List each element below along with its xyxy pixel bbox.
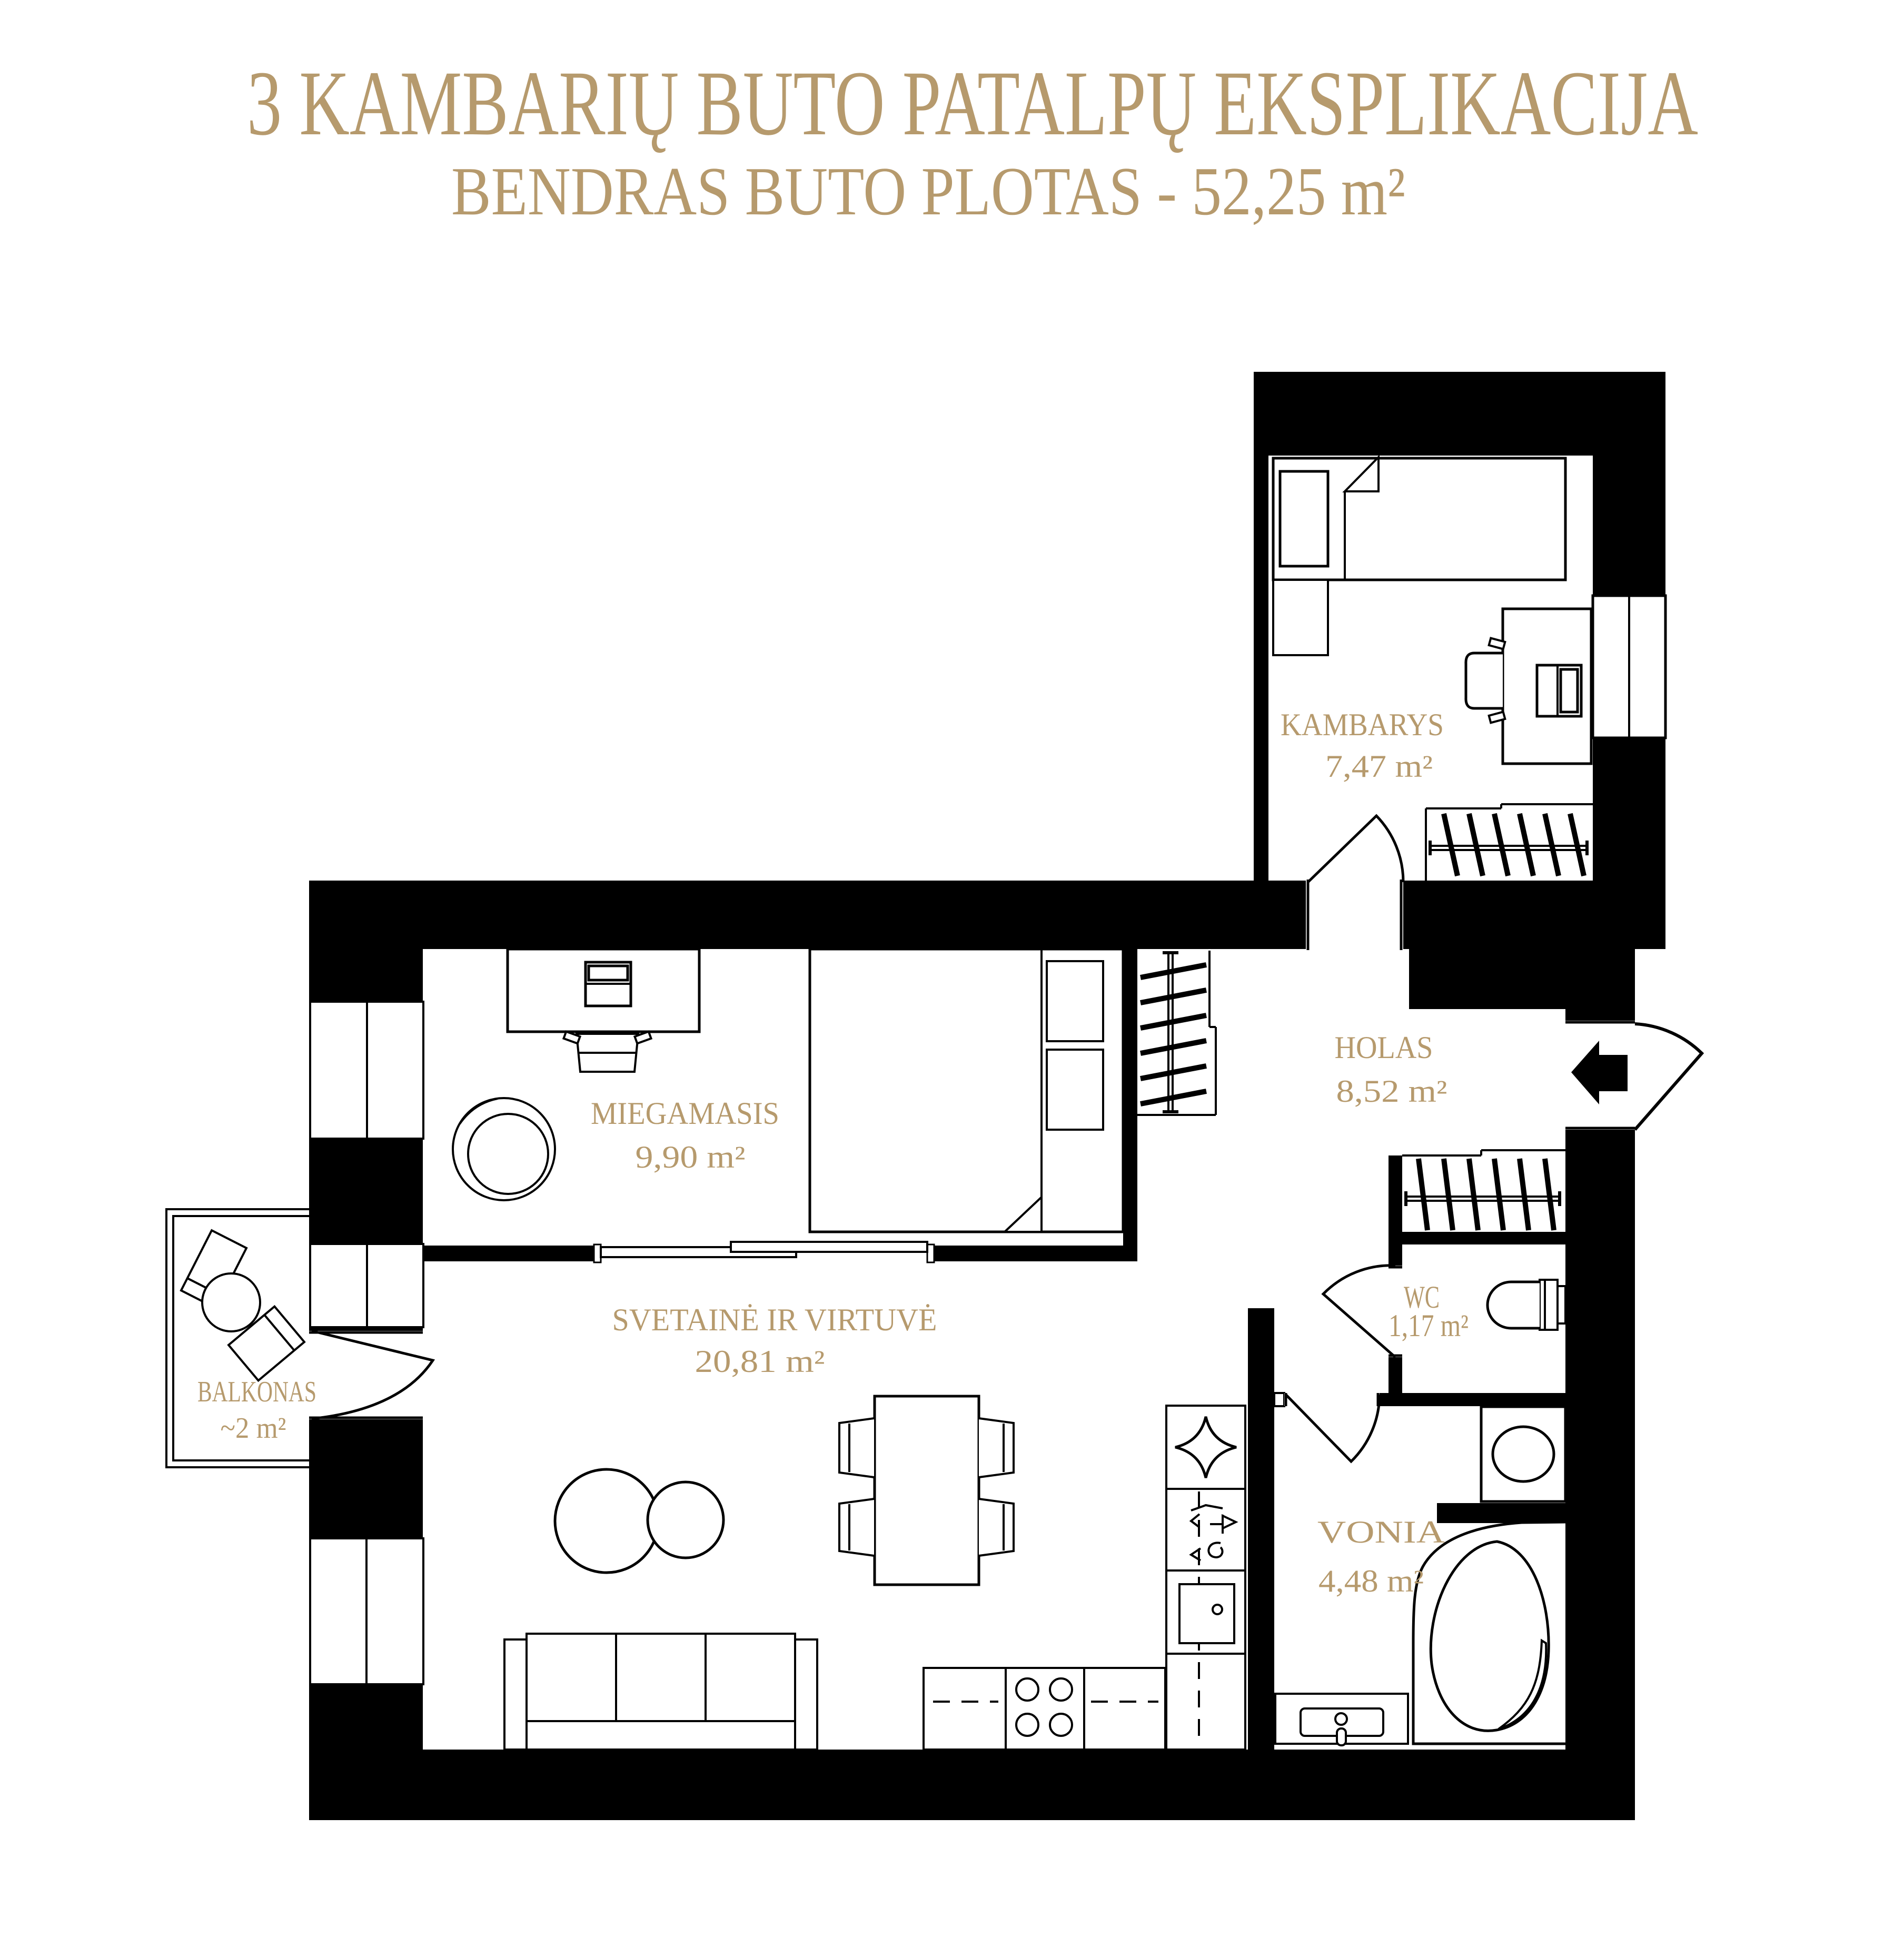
svg-text:9,90 m²: 9,90 m² bbox=[636, 1140, 746, 1174]
svg-text:VONIA: VONIA bbox=[1317, 1515, 1445, 1549]
svg-text:~2 m²: ~2 m² bbox=[221, 1412, 286, 1445]
svg-text:4,48 m²: 4,48 m² bbox=[1318, 1564, 1424, 1598]
svg-text:MIEGAMASIS: MIEGAMASIS bbox=[591, 1096, 779, 1131]
svg-text:3 KAMBARIŲ BUTO PATALPŲ EKSPLI: 3 KAMBARIŲ BUTO PATALPŲ EKSPLIKACIJA bbox=[247, 52, 1698, 155]
svg-text:7,47 m²: 7,47 m² bbox=[1325, 749, 1433, 784]
svg-text:8,52 m²: 8,52 m² bbox=[1336, 1074, 1447, 1109]
svg-text:BALKONAS: BALKONAS bbox=[197, 1376, 316, 1408]
svg-text:KAMBARYS: KAMBARYS bbox=[1281, 707, 1444, 742]
svg-text:HOLAS: HOLAS bbox=[1335, 1030, 1433, 1065]
svg-text:SVETAINĖ IR VIRTUVĖ: SVETAINĖ IR VIRTUVĖ bbox=[612, 1302, 937, 1337]
svg-text:20,81 m²: 20,81 m² bbox=[695, 1344, 825, 1379]
svg-text:BENDRAS BUTO PLOTAS - 52,25 m²: BENDRAS BUTO PLOTAS - 52,25 m² bbox=[451, 153, 1405, 230]
svg-text:1,17 m²: 1,17 m² bbox=[1389, 1308, 1469, 1343]
